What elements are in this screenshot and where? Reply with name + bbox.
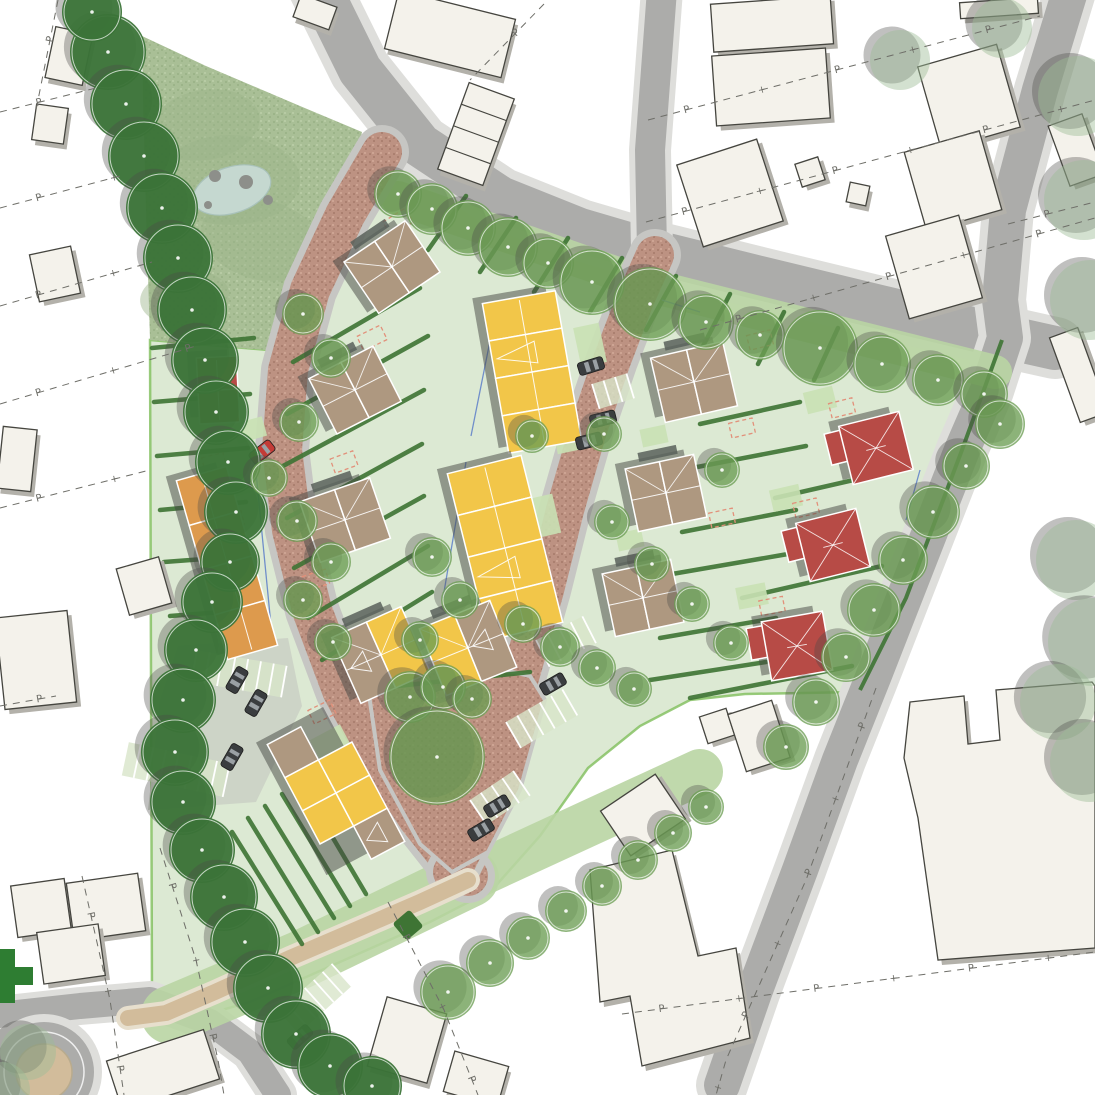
boundary-letter-p: P <box>831 165 840 177</box>
context-building <box>712 48 835 130</box>
boulder <box>204 201 212 209</box>
boundary-letter-p: P <box>34 387 43 399</box>
tree <box>972 0 1032 58</box>
boundary-letter-p: P <box>967 963 974 975</box>
boundary-letter-p: P <box>813 983 820 995</box>
boundary-cross: + <box>734 993 744 1005</box>
context-building <box>0 426 41 497</box>
context-building <box>37 924 110 989</box>
road-north-vertical <box>650 0 662 250</box>
context-building <box>385 0 519 83</box>
boundary-letter-p: P <box>680 206 689 218</box>
boundary-cross: + <box>889 973 899 985</box>
boundary-letter-p: P <box>34 192 43 204</box>
boundary-letter-p: P <box>35 97 44 109</box>
tree <box>870 30 930 90</box>
context-building <box>443 1051 511 1095</box>
boundary-letter-p: P <box>35 493 44 505</box>
boundary-cross: + <box>108 365 119 378</box>
boundary-cross: + <box>109 473 120 486</box>
context-building <box>32 104 72 150</box>
site-plan-svg: PP+P+P+PP+PP+PP+PP+P+PP+P+P+P+P+PP+P+P+P… <box>0 0 1095 1095</box>
boundary-cross: + <box>905 144 916 157</box>
context-building <box>846 182 873 211</box>
boulder <box>239 175 253 189</box>
boundary-line <box>0 176 120 208</box>
boulder <box>263 195 273 205</box>
boundary-letter-p: P <box>682 104 691 116</box>
boulder <box>209 170 221 182</box>
boundary-cross: + <box>1044 953 1054 965</box>
boundary-cross: + <box>108 267 119 280</box>
site-plan-masterplan: PP+P+P+PP+PP+PP+PP+P+PP+P+P+P+P+PP+P+P+P… <box>0 0 1095 1095</box>
boundary-letter-p: P <box>833 64 842 76</box>
boundary-letter-p: P <box>1034 228 1043 240</box>
